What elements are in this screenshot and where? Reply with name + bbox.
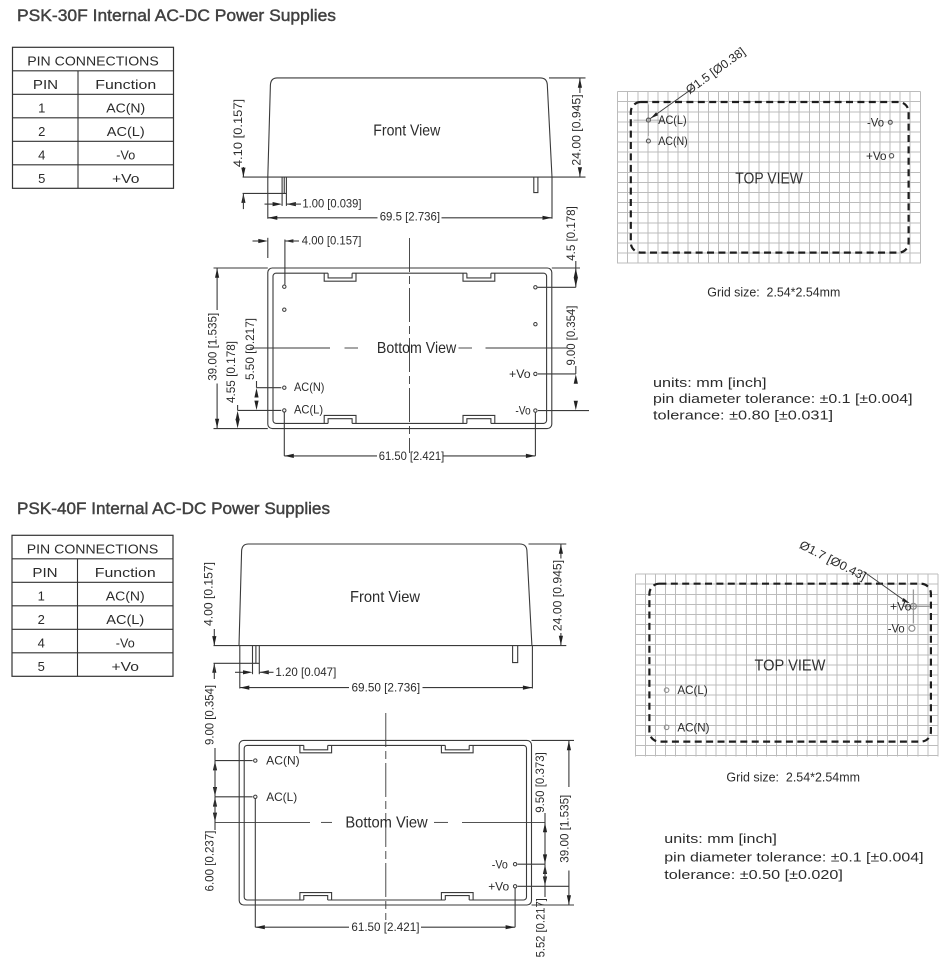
svg-text:4.55 [0.178]: 4.55 [0.178] [225, 341, 238, 403]
svg-text:61.50 [2.421]: 61.50 [2.421] [379, 450, 445, 463]
svg-text:-Vo: -Vo [888, 621, 905, 635]
svg-text:AC(N): AC(N) [106, 100, 145, 115]
svg-text:69.50 [2.736]: 69.50 [2.736] [352, 682, 421, 695]
svg-text:5: 5 [38, 659, 45, 674]
svg-text:4.5 [0.178]: 4.5 [0.178] [565, 206, 578, 261]
svg-text:1: 1 [38, 588, 45, 603]
svg-text:Function: Function [95, 565, 156, 580]
svg-text:tolerance: ±0.80 [±0.031]: tolerance: ±0.80 [±0.031] [653, 408, 833, 423]
svg-text:+Vo: +Vo [509, 367, 531, 381]
svg-text:39.00 [1.535]: 39.00 [1.535] [207, 313, 220, 381]
svg-text:+Vo: +Vo [488, 879, 509, 893]
svg-text:AC(N): AC(N) [294, 380, 324, 394]
svg-text:Front View: Front View [373, 123, 440, 140]
svg-text:1.20 [0.047]: 1.20 [0.047] [275, 666, 336, 679]
svg-text:AC(L): AC(L) [677, 683, 707, 697]
svg-text:PSK-30F Internal AC-DC Power S: PSK-30F Internal AC-DC Power Supplies [17, 6, 336, 25]
svg-text:TOP VIEW: TOP VIEW [735, 170, 803, 187]
svg-text:units: mm [inch]: units: mm [inch] [653, 375, 767, 390]
svg-text:AC(N): AC(N) [658, 134, 688, 148]
svg-text:-Vo: -Vo [492, 857, 508, 871]
svg-text:PIN CONNECTIONS: PIN CONNECTIONS [27, 541, 159, 556]
svg-text:5.52 [0.217]: 5.52 [0.217] [534, 898, 547, 957]
svg-text:AC(L): AC(L) [266, 790, 297, 804]
svg-text:-Vo: -Vo [515, 404, 531, 418]
svg-text:+Vo: +Vo [112, 659, 139, 674]
svg-text:4: 4 [38, 147, 45, 162]
svg-text:pin diameter tolerance: ±0.1 [: pin diameter tolerance: ±0.1 [±0.004] [653, 391, 913, 406]
svg-text:Front View: Front View [350, 589, 420, 606]
svg-text:9.50 [0.373]: 9.50 [0.373] [534, 752, 547, 813]
svg-text:AC(L): AC(L) [107, 124, 145, 139]
svg-text:9.00 [0.354]: 9.00 [0.354] [565, 306, 578, 366]
svg-text:24.00 [0.945]: 24.00 [0.945] [570, 94, 583, 165]
svg-text:Bottom View: Bottom View [377, 340, 457, 357]
svg-text:AC(N): AC(N) [266, 754, 300, 768]
svg-text:tolerance: ±0.50 [±0.020]: tolerance: ±0.50 [±0.020] [664, 867, 843, 882]
svg-text:61.50 [2.421]: 61.50 [2.421] [351, 921, 419, 934]
svg-text:+Vo: +Vo [890, 599, 912, 613]
svg-text:69.5 [2.736]: 69.5 [2.736] [380, 210, 440, 223]
svg-text:AC(L): AC(L) [294, 403, 323, 417]
svg-text:-Vo: -Vo [867, 115, 884, 129]
svg-text:24.00 [0.945]: 24.00 [0.945] [551, 560, 564, 631]
svg-text:AC(N): AC(N) [677, 720, 709, 734]
svg-text:PSK-40F Internal AC-DC Power S: PSK-40F Internal AC-DC Power Supplies [17, 499, 330, 518]
svg-text:39.00 [1.535]: 39.00 [1.535] [558, 795, 571, 863]
svg-text:AC(L): AC(L) [106, 612, 144, 627]
svg-text:+Vo: +Vo [866, 149, 887, 163]
svg-text:AC(N): AC(N) [106, 588, 145, 603]
svg-text:2: 2 [38, 124, 45, 139]
svg-text:AC(L): AC(L) [658, 113, 686, 127]
svg-text:4.00 [0.157]: 4.00 [0.157] [302, 234, 362, 247]
svg-text:PIN CONNECTIONS: PIN CONNECTIONS [27, 53, 159, 68]
svg-text:units: mm [inch]: units: mm [inch] [664, 831, 777, 846]
svg-text:1.00 [0.039]: 1.00 [0.039] [302, 197, 361, 210]
svg-text:-Vo: -Vo [116, 635, 135, 650]
svg-text:6.00 [0.237]: 6.00 [0.237] [204, 831, 217, 892]
svg-text:Grid size: 2.54*2.54mm: Grid size: 2.54*2.54mm [707, 284, 840, 299]
svg-text:4.10 [0.157]: 4.10 [0.157] [232, 99, 245, 167]
svg-text:4.00 [0.157]: 4.00 [0.157] [203, 562, 216, 626]
svg-text:Bottom View: Bottom View [345, 815, 428, 832]
svg-text:Function: Function [95, 77, 156, 92]
svg-text:4: 4 [38, 635, 45, 650]
svg-text:TOP VIEW: TOP VIEW [755, 657, 827, 674]
svg-text:5: 5 [38, 171, 45, 186]
svg-text:PIN: PIN [32, 565, 57, 580]
svg-text:PIN: PIN [33, 77, 58, 92]
svg-text:pin diameter tolerance: ±0.1 [: pin diameter tolerance: ±0.1 [±0.004] [664, 849, 923, 864]
svg-text:Grid size: 2.54*2.54mm: Grid size: 2.54*2.54mm [726, 770, 860, 785]
svg-text:5.50 [0.217]: 5.50 [0.217] [244, 318, 257, 380]
svg-text:1: 1 [38, 100, 45, 115]
svg-text:9.00 [0.354]: 9.00 [0.354] [204, 685, 217, 745]
svg-text:2: 2 [38, 612, 45, 627]
svg-text:-Vo: -Vo [116, 147, 135, 162]
svg-text:+Vo: +Vo [112, 171, 139, 186]
